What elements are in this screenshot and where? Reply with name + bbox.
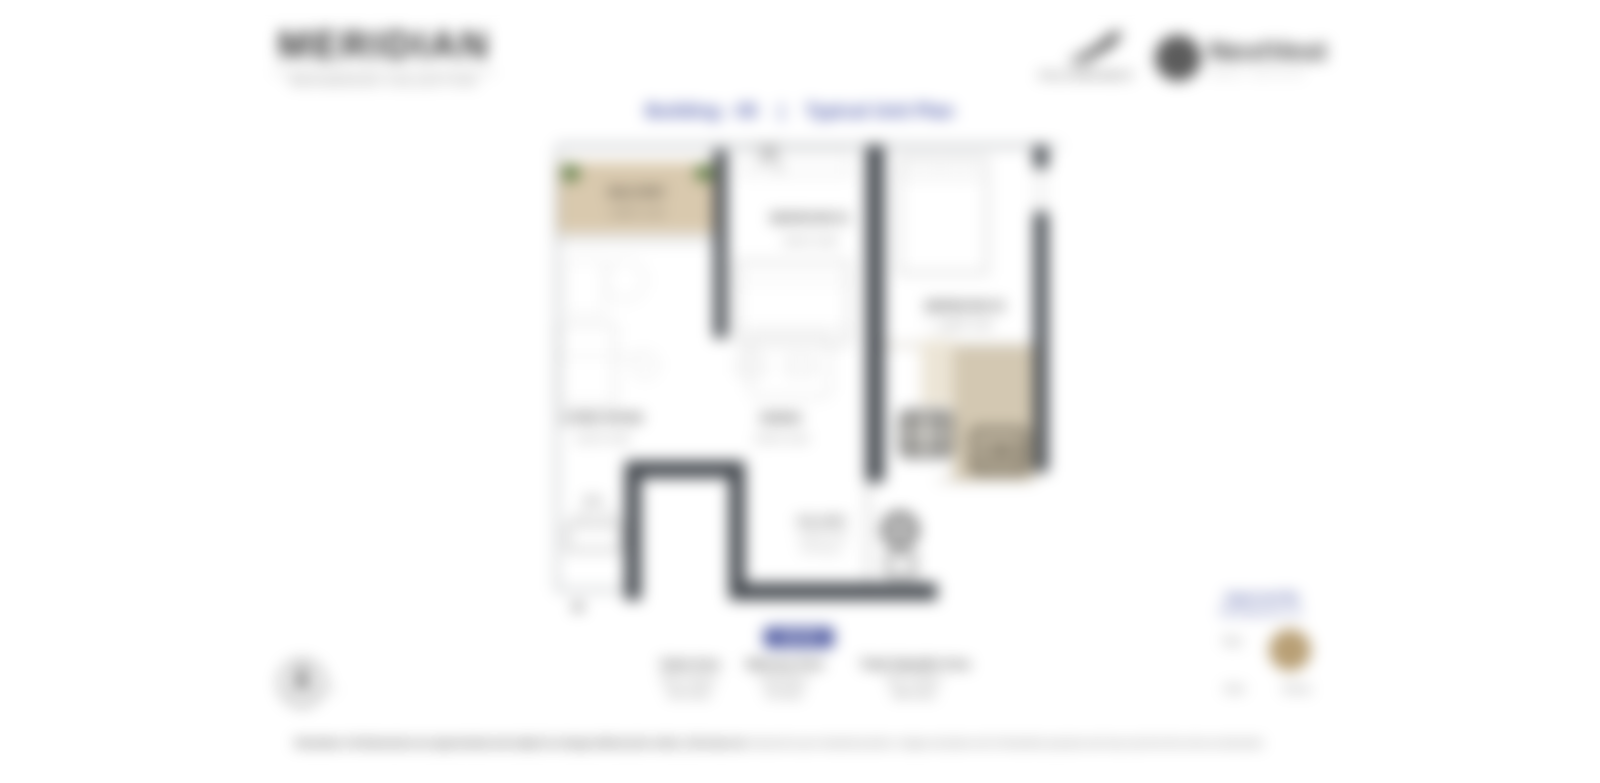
svg-text:LIVING ROOM: LIVING ROOM [562,411,643,425]
svg-text:BALCONY: BALCONY [609,187,666,199]
svg-text:W.C.: W.C. [584,496,606,507]
svg-text:4.50 Sq.m.: 4.50 Sq.m. [800,544,844,554]
svg-text:BEDROOM 02: BEDROOM 02 [925,299,1005,313]
svg-text:HALLWAY: HALLWAY [797,515,847,527]
svg-text:1.50 X 2.20: 1.50 X 2.20 [572,511,618,521]
svg-text:3.20 X 3.00: 3.20 X 3.00 [938,319,992,331]
svg-text:DINING: DINING [760,411,802,425]
svg-text:N: N [330,685,337,695]
svg-text:1.20 X 2.75: 1.20 X 2.75 [798,530,847,541]
svg-text:3.64 X 3.20: 3.64 X 3.20 [783,235,837,247]
svg-text:2.40 X 3.10: 2.40 X 3.10 [754,433,808,445]
svg-text:3.10 X 4.20: 3.10 X 4.20 [575,433,629,445]
svg-text:2.96 X 1.52: 2.96 X 1.52 [610,207,664,219]
svg-text:FALCONCREST: FALCONCREST [1039,70,1134,82]
svg-text:BEDROOM 01: BEDROOM 01 [770,211,850,225]
